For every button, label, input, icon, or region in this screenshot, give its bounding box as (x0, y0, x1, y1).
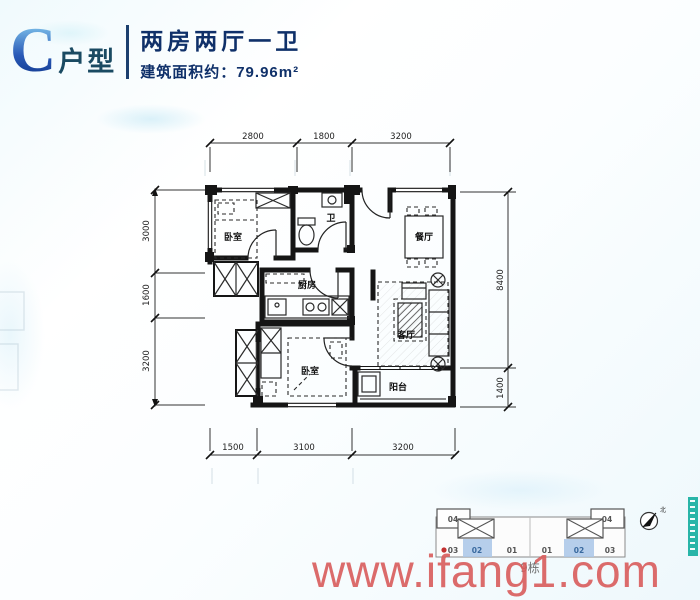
dim-top-1: 2800 (242, 132, 264, 142)
watermark-text: www.ifang1.com (312, 544, 661, 598)
plan-header: C 户型 两房两厅一卫 建筑面积约：79.96m² (10, 22, 302, 82)
corner-unit-right: 04 (602, 515, 612, 524)
doors (248, 190, 390, 366)
dim-right-2: 1400 (496, 377, 506, 399)
kitchen-label: 厨房 (298, 279, 316, 291)
living-label: 客厅 (396, 329, 415, 341)
corner-unit-left: 04 (448, 515, 458, 524)
dimension-bottom: 1500 3100 3200 (206, 428, 459, 459)
bedroom2-label: 卧室 (301, 365, 319, 377)
bathroom-label: 卫 (326, 213, 335, 224)
dim-right-1: 8400 (496, 269, 506, 291)
bedroom2-furniture (261, 328, 346, 396)
balcony-label: 阳台 (389, 381, 407, 393)
area-text: 建筑面积约：79.96m² (140, 61, 302, 82)
dim-left-2: 1600 (142, 284, 152, 306)
layout-title: 两房两厅一卫 (140, 22, 302, 56)
bathroom-fixtures (298, 192, 352, 245)
bedroom1-door-arc (248, 230, 276, 258)
ac-platform-top (214, 262, 258, 296)
dim-top-2: 1800 (313, 132, 335, 142)
dim-left-1: 3000 (142, 220, 152, 242)
unit-letter: C (10, 22, 56, 82)
dimension-top: 2800 1800 3200 (206, 132, 454, 172)
vertical-teal-badge (688, 497, 698, 556)
header-divider (126, 25, 129, 79)
bedroom1-furniture (215, 193, 290, 258)
floorplan-canvas: 2800 1800 3200 3000 1600 3200 8400 1400 (0, 0, 700, 600)
living-furniture (378, 273, 449, 371)
bedroom1-label: 卧室 (224, 231, 242, 243)
compass-icon: 北 (641, 506, 667, 530)
north-label: 北 (660, 506, 666, 514)
entry-door-arc (362, 190, 390, 218)
dining-label: 餐厅 (414, 231, 433, 243)
dimension-right: 8400 1400 (460, 188, 516, 411)
balcony-fixtures (358, 372, 380, 396)
dim-left-3: 3200 (142, 350, 152, 372)
dim-bottom-1: 1500 (222, 443, 244, 453)
dim-bottom-2: 3100 (293, 443, 315, 453)
dim-top-3: 3200 (390, 132, 412, 142)
unit-type-suffix: 户型 (58, 40, 116, 79)
dim-bottom-3: 3200 (392, 443, 414, 453)
bathroom-door-arc (318, 222, 346, 250)
dimension-left: 3000 1600 3200 (142, 186, 205, 409)
